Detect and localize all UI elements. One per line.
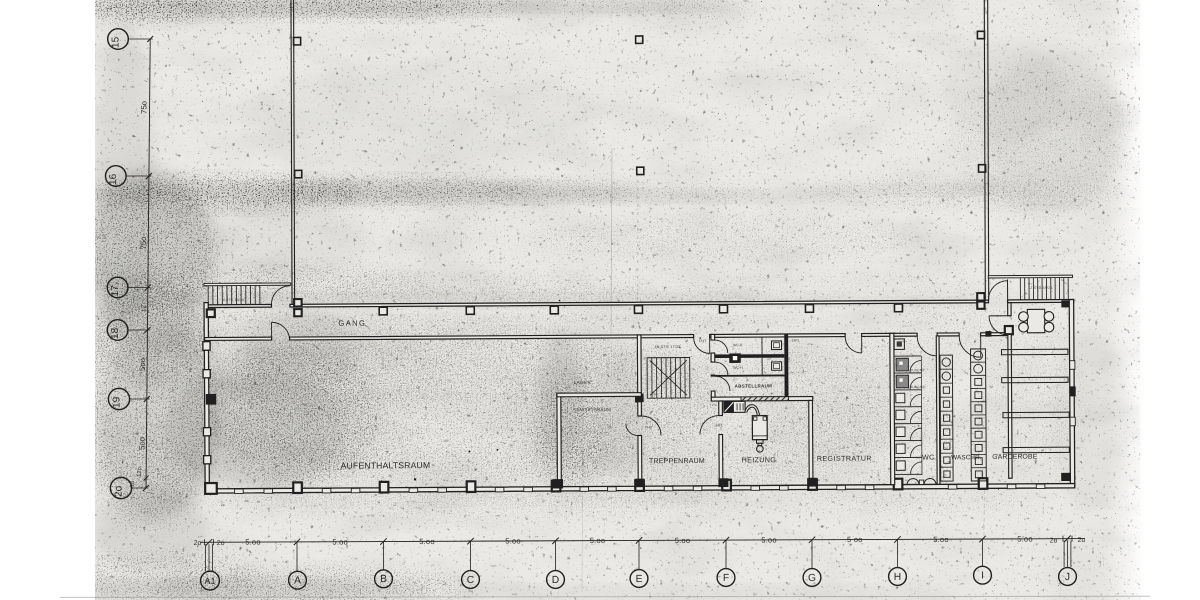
- svg-text:H: H: [894, 572, 901, 583]
- svg-text:GANG: GANG: [338, 319, 366, 328]
- svg-text:2o: 2o: [1050, 538, 1058, 545]
- svg-text:F: F: [723, 573, 729, 584]
- svg-text:D: D: [552, 575, 559, 586]
- svg-text:18: 18: [110, 327, 121, 339]
- svg-text:TREPPENRAUM: TREPPENRAUM: [649, 458, 705, 465]
- svg-text:5.oo: 5.oo: [761, 536, 777, 545]
- svg-text:ENTL: ENTL: [792, 339, 800, 343]
- svg-text:J: J: [1065, 572, 1070, 583]
- svg-text:5 oo: 5 oo: [847, 535, 863, 544]
- svg-text:5.oo: 5.oo: [245, 538, 261, 547]
- svg-text:9 STG 16/3o: 9 STG 16/3o: [223, 298, 244, 302]
- svg-text:16: 16: [108, 173, 119, 185]
- svg-text:5.oo: 5.oo: [590, 536, 606, 545]
- svg-text:DUSCHE: DUSCHE: [910, 385, 926, 389]
- svg-text:LAGER: LAGER: [574, 380, 591, 385]
- svg-text:A1: A1: [204, 576, 215, 586]
- svg-text:WC-H: WC-H: [733, 366, 743, 370]
- svg-text:75o: 75o: [140, 100, 149, 114]
- svg-text:12o: 12o: [136, 467, 143, 477]
- svg-text:G: G: [808, 573, 816, 584]
- svg-text:HEIZUNG: HEIZUNG: [742, 455, 777, 464]
- svg-text:WC-D: WC-D: [733, 343, 743, 347]
- svg-text:REGISTRATUR: REGISTRATUR: [817, 456, 872, 463]
- svg-text:2o: 2o: [1078, 537, 1086, 544]
- svg-text:17: 17: [110, 285, 121, 297]
- svg-text:I: I: [981, 571, 984, 582]
- svg-text:2o: 2o: [217, 540, 225, 547]
- svg-text:15: 15: [110, 36, 121, 48]
- svg-text:FHT: FHT: [699, 339, 707, 343]
- svg-text:19 STG 17/28: 19 STG 17/28: [655, 345, 681, 349]
- svg-text:5.oo: 5.oo: [332, 537, 348, 546]
- svg-text:C: C: [467, 575, 475, 586]
- svg-text:19: 19: [111, 396, 122, 408]
- svg-text:17 STG 49/28: 17 STG 49/28: [1028, 286, 1052, 290]
- svg-text:AUFENTHALTSRAUM: AUFENTHALTSRAUM: [341, 460, 431, 471]
- svg-text:WASCHR.: WASCHR.: [951, 454, 982, 461]
- svg-text:GARDEROBE: GARDEROBE: [992, 454, 1038, 461]
- svg-text:5.oo: 5.oo: [1017, 534, 1033, 543]
- svg-text:5.oo: 5.oo: [933, 535, 949, 544]
- svg-text:FHT: FHT: [645, 426, 653, 430]
- svg-text:5.oo: 5.oo: [505, 537, 521, 546]
- svg-text:5oo: 5oo: [138, 357, 147, 371]
- svg-text:DUSCHE: DUSCHE: [910, 368, 926, 372]
- svg-text:2o: 2o: [113, 485, 124, 497]
- svg-text:5.oo: 5.oo: [675, 536, 691, 545]
- svg-text:12: 12: [140, 305, 147, 312]
- svg-text:E: E: [636, 574, 643, 585]
- svg-text:SANITÄTSRAUM: SANITÄTSRAUM: [573, 407, 611, 412]
- svg-text:ABSTELLRAUM: ABSTELLRAUM: [735, 383, 773, 388]
- svg-text:FBT: FBT: [716, 423, 724, 427]
- svg-text:A: A: [294, 576, 301, 587]
- svg-text:5oo: 5oo: [137, 436, 146, 450]
- svg-text:B: B: [380, 574, 387, 585]
- svg-text:75o: 75o: [139, 236, 148, 250]
- svg-text:18: 18: [129, 481, 136, 487]
- svg-text:WC: WC: [922, 455, 935, 462]
- svg-text:2o: 2o: [194, 540, 202, 547]
- svg-text:5.oo: 5.oo: [419, 537, 435, 546]
